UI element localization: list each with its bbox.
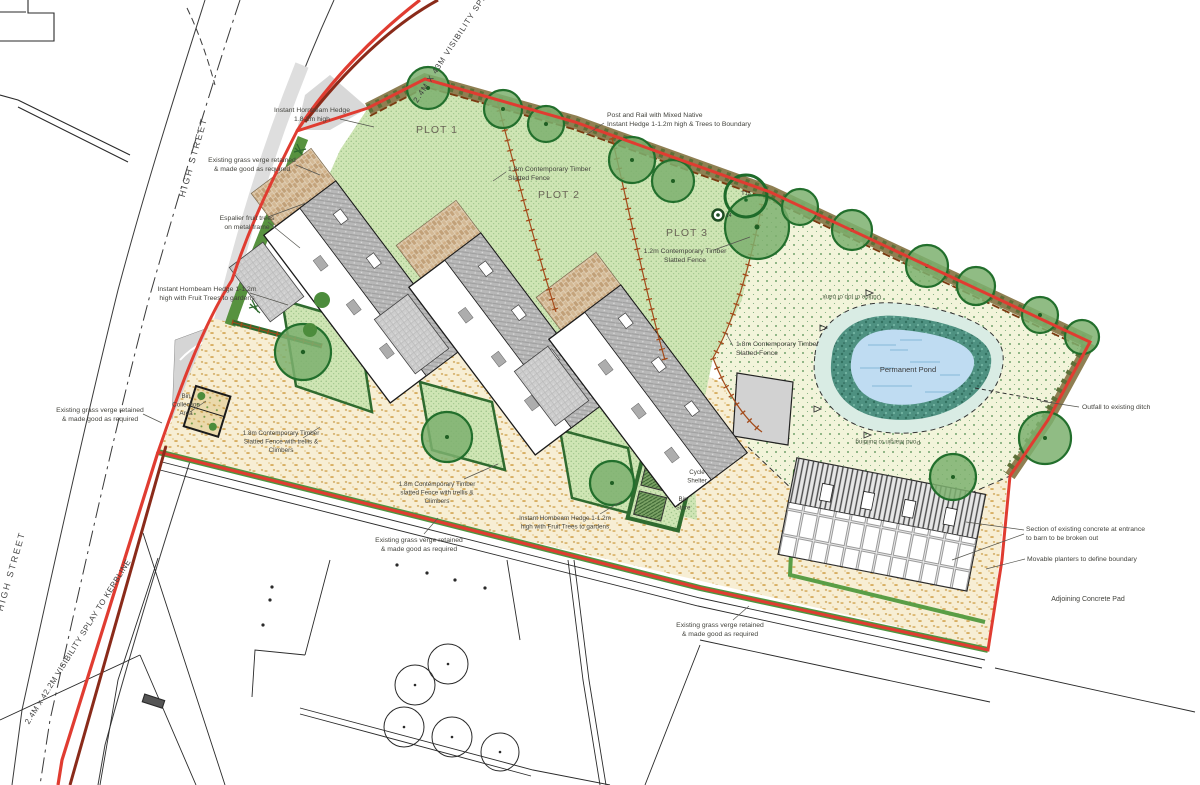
high-street-east-kerb-lower (98, 455, 192, 785)
label-visibility-splay-bottom: 2.4M x 42.2M VISIBILITY SPLAY TO KERBLIN… (23, 558, 133, 726)
label-cycle-shelter: CycleShelter (687, 469, 707, 484)
building-top-left (0, 0, 54, 41)
site-plan-drawing: 2.4M X 43M VISIBILITY SPLInstant Hornbea… (0, 0, 1200, 785)
label-pond-margin: Pond Margin to building (855, 438, 921, 445)
label-high-street-lower: HIGH STREET (0, 530, 27, 612)
offsite-trees (261, 563, 519, 771)
label-concrete-broken-out: Section of existing concrete at entrance… (1026, 526, 1145, 542)
label-plot-1: PLOT 1 (416, 124, 458, 136)
label-existing-grass-verge-4: Existing grass verge retained& made good… (676, 622, 764, 638)
wall-bottom-mid (300, 708, 610, 785)
label-tree-t13: T13 (741, 191, 750, 197)
parcel-lines-bottom-left (0, 533, 225, 785)
label-permanent-pond: Permanent Pond (880, 365, 936, 374)
wall-segment (142, 694, 164, 708)
label-top-of-bank: Outline of top of bank (822, 293, 882, 300)
label-tree-14: 14 (726, 213, 732, 219)
survey-point-14 (713, 210, 724, 221)
site-plan: 2.4M X 43M VISIBILITY SPLInstant Hornbea… (0, 0, 1200, 785)
label-movable-planters: Movable planters to define boundary (1027, 556, 1138, 563)
label-adjoining-concrete-pad: Adjoining Concrete Pad (1051, 596, 1125, 603)
label-existing-grass-verge-3: Existing grass verge retained& made good… (375, 537, 463, 553)
wall-top-left (0, 95, 130, 162)
concrete-pad (733, 373, 793, 445)
label-existing-grass-verge-2: Existing grass verge retained& made good… (56, 407, 144, 423)
road-dashed-edge (187, 8, 215, 85)
label-outfall: Outfall to existing ditch (1082, 404, 1151, 411)
splay-maroon-bottom (70, 446, 166, 785)
parcel-lines-bottom-mid (252, 560, 606, 785)
label-hornbeam-fruit-mid: Instant Hornbeam Hedge 1-1.2mhigh with F… (519, 515, 611, 531)
label-existing-grass-verge-1: Existing grass verge retained& made good… (208, 157, 296, 173)
label-post-and-rail-hedge: Post and Rail with Mixed NativeInstant H… (607, 112, 752, 128)
label-plot-2: PLOT 2 (538, 189, 580, 201)
label-plot-3: PLOT 3 (666, 227, 708, 239)
label-high-street-upper: HIGH STREET (177, 116, 209, 198)
